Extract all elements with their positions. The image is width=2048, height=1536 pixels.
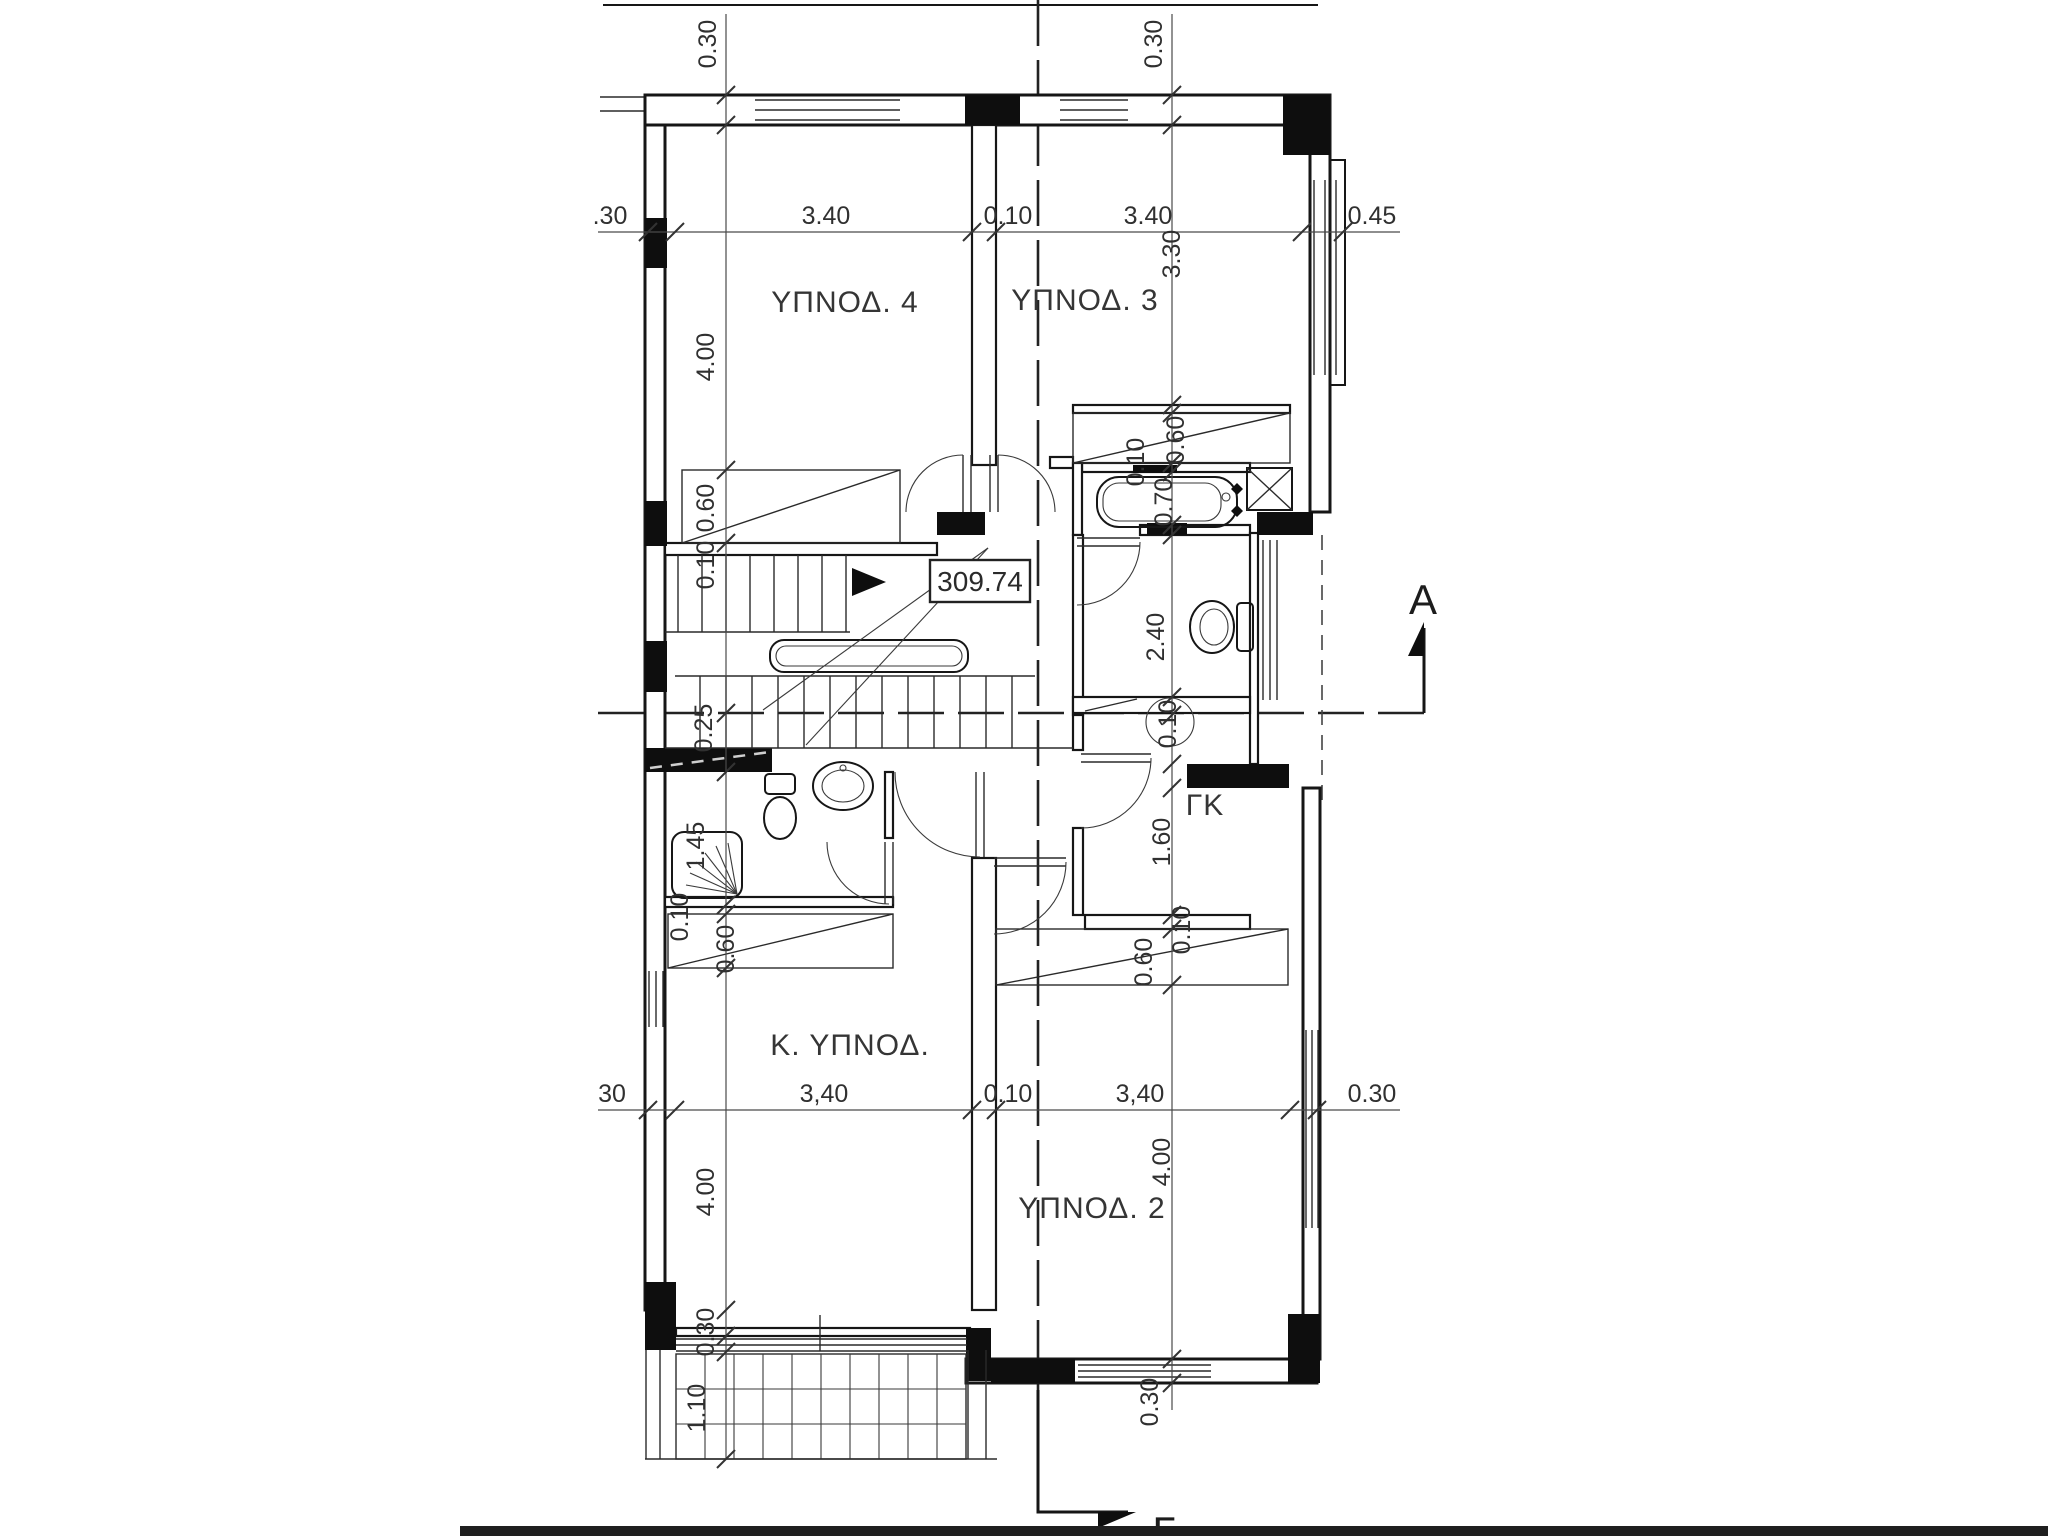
dim-label: 3.40 — [802, 202, 851, 230]
level-tag: 309.74 — [930, 560, 1030, 602]
dim-label: 0.70 — [1150, 478, 1178, 527]
gamma-arrow-icon — [1098, 1512, 1136, 1528]
dim-label: 0.30 — [692, 1308, 720, 1357]
dim-label: 0.60 — [692, 484, 720, 533]
dim-label: 3,40 — [1116, 1080, 1165, 1108]
wall-shower-right-a — [885, 772, 893, 838]
window-right-wc — [1263, 540, 1277, 700]
dim-label: 4.00 — [1148, 1138, 1176, 1187]
stair-direction-arrow-icon — [852, 568, 886, 596]
wall-right-upper — [1310, 95, 1330, 512]
level-value: 309.74 — [937, 566, 1023, 597]
wall-master-south — [676, 1328, 970, 1336]
room-label-bedroom4: ΥΠΝΟΔ. 4 — [771, 286, 918, 319]
toilet-wc — [1190, 601, 1253, 653]
dim-label: 0.25 — [690, 704, 718, 753]
dim-label: 0.10 — [984, 1080, 1033, 1108]
dim-label: 4.00 — [692, 1168, 720, 1217]
wall-divider-upper — [972, 125, 996, 465]
dim-label: 30 — [598, 1080, 626, 1108]
wall-bed3-entry — [1050, 457, 1073, 468]
section-line-gamma — [1038, 0, 1136, 1528]
dim-label: 0.30 — [694, 20, 722, 69]
door-shower-room — [827, 842, 893, 904]
room-label-bedroom2: ΥΠΝΟΔ. 2 — [1018, 1192, 1165, 1225]
wall-gk-left-b — [1073, 828, 1083, 915]
dim-label: 0.30 — [1140, 20, 1168, 69]
room-label-master-bedroom: Κ. ΥΠΝΟΔ. — [770, 1029, 930, 1062]
dim-label: 4.00 — [692, 333, 720, 382]
section-line-a — [598, 622, 1424, 713]
toilet-shower-room — [764, 774, 796, 839]
dim-label: 3.30 — [1158, 230, 1186, 279]
bottom-bar — [460, 1526, 2048, 1536]
dim-label: 0.10 — [1122, 438, 1150, 487]
wall-bed3-bottom — [1073, 405, 1290, 413]
wall-gk-left-a — [1073, 715, 1083, 750]
dimension-lines — [598, 14, 1400, 1468]
door-bedroom3 — [990, 455, 1055, 512]
shaft — [1247, 468, 1292, 510]
room-label-bedroom3: ΥΠΝΟΔ. 3 — [1011, 284, 1158, 317]
walls — [645, 95, 1345, 1383]
dim-label: 1.10 — [683, 1384, 711, 1433]
dim-label: 0.10 — [666, 893, 694, 942]
section-letter-a: A — [1409, 576, 1437, 623]
dim-label: 0.60 — [712, 925, 740, 974]
door-bedroom2 — [994, 858, 1066, 934]
dim-label: .30 — [593, 202, 628, 230]
wall-left — [645, 125, 665, 1310]
dim-label: 0.30 — [1136, 1378, 1164, 1427]
wall-right-bump — [1330, 160, 1345, 385]
dim-label: 0.45 — [1348, 202, 1397, 230]
floor-plan-canvas: 309.74 A Γ ΥΠΝΟΔ. 4ΥΠΝΟΔ. 3Κ. ΥΠΝΟΔ.ΥΠΝΟ… — [0, 0, 2048, 1536]
dim-label: 3,40 — [800, 1080, 849, 1108]
a-arrow-icon — [1408, 622, 1424, 656]
dim-label: 0.10 — [984, 202, 1033, 230]
dim-label: 1.45 — [682, 822, 710, 871]
dim-label: 0.10 — [692, 541, 720, 590]
room-label-closet: ΓΚ — [1186, 789, 1225, 822]
dim-label: 0.60 — [1162, 416, 1190, 465]
floor-plan-page: 309.74 A Γ ΥΠΝΟΔ. 4ΥΠΝΟΔ. 3Κ. ΥΠΝΟΔ.ΥΠΝΟ… — [0, 0, 2048, 1536]
dim-label: 1.60 — [1148, 818, 1176, 867]
dim-label: 0.60 — [1130, 938, 1158, 987]
dim-label: 0.30 — [1348, 1080, 1397, 1108]
wall-wc-right — [1250, 533, 1258, 764]
door-wc — [1077, 538, 1140, 605]
wall-wc-left — [1073, 535, 1083, 715]
dim-label: 3.40 — [1124, 202, 1173, 230]
dim-label: 0.10 — [1154, 700, 1182, 749]
door-bedroom4 — [906, 455, 971, 512]
dim-label: 2.40 — [1142, 613, 1170, 662]
door-closet-gk — [1081, 754, 1151, 828]
stair-handrail — [770, 640, 968, 672]
wall-bath-left — [1073, 463, 1082, 535]
dim-label: 0.10 — [1168, 906, 1196, 955]
door-hall-corridor — [895, 772, 984, 857]
sink-shower-room — [813, 762, 873, 810]
